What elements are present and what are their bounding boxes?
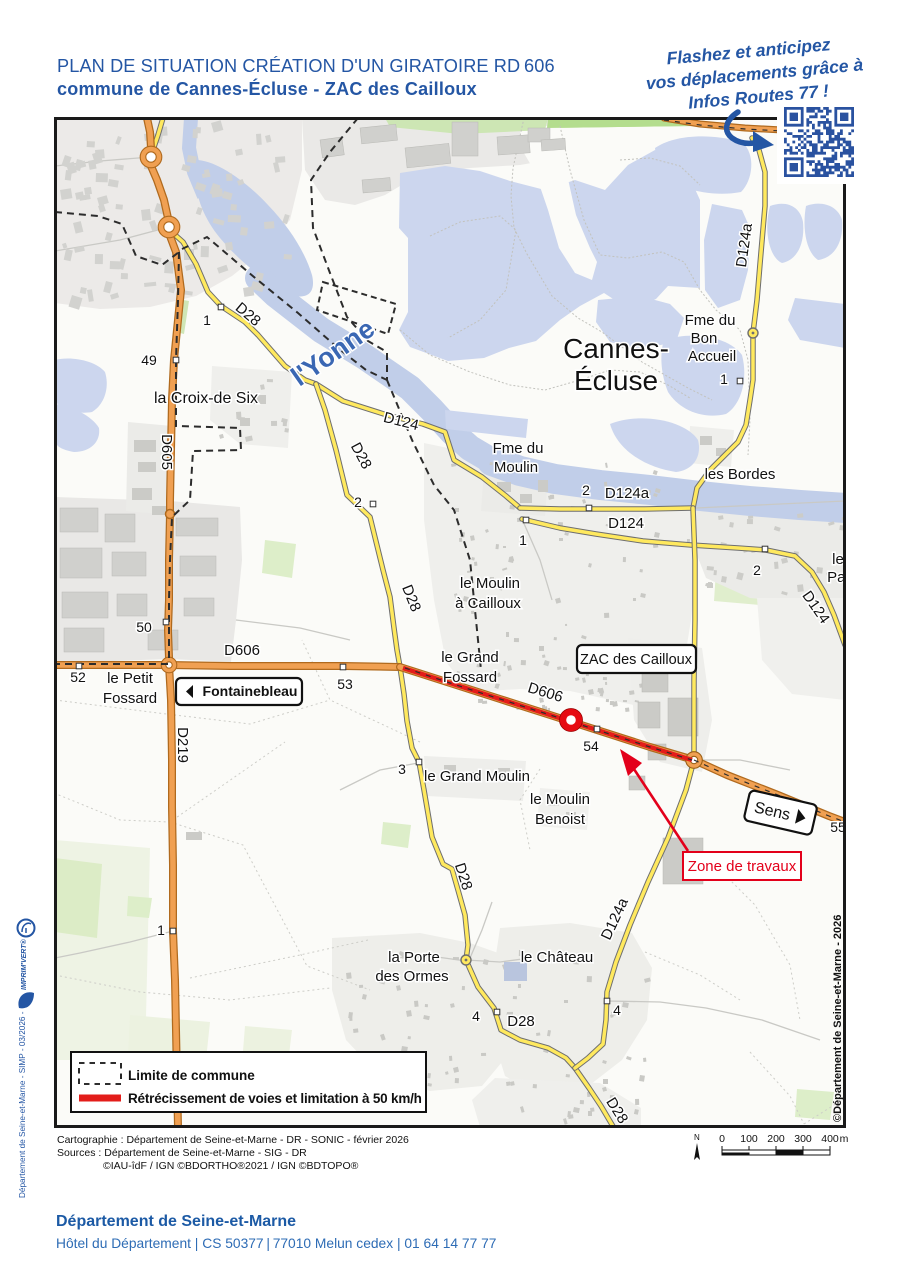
svg-text:1: 1 bbox=[203, 312, 211, 328]
svg-text:Bon: Bon bbox=[691, 330, 718, 347]
svg-text:300: 300 bbox=[794, 1133, 812, 1145]
svg-text:3: 3 bbox=[398, 761, 406, 777]
svg-text:1: 1 bbox=[519, 532, 527, 548]
svg-text:le Moulin: le Moulin bbox=[460, 575, 520, 592]
svg-text:200: 200 bbox=[767, 1133, 785, 1145]
svg-text:400: 400 bbox=[821, 1133, 839, 1145]
svg-text:49: 49 bbox=[141, 352, 157, 368]
svg-text:Hôtel du Département | CS 5037: Hôtel du Département | CS 50377 | 77010 … bbox=[56, 1236, 496, 1251]
svg-text:0: 0 bbox=[719, 1133, 725, 1145]
svg-text:Benoist: Benoist bbox=[535, 811, 586, 828]
svg-text:Fontainebleau: Fontainebleau bbox=[203, 683, 298, 699]
svg-text:le Grand: le Grand bbox=[441, 649, 499, 666]
svg-text:Cartographie : Département de: Cartographie : Département de Seine-et-M… bbox=[57, 1134, 409, 1146]
svg-text:PLAN DE SITUATION CRÉATION D'U: PLAN DE SITUATION CRÉATION D'UN GIRATOIR… bbox=[57, 56, 555, 76]
svg-text:Département de Seine-et-Marne: Département de Seine-et-Marne - SIMP - 0… bbox=[18, 1011, 27, 1198]
svg-text:des Ormes: des Ormes bbox=[375, 968, 448, 985]
svg-text:ZAC des Cailloux: ZAC des Cailloux bbox=[580, 652, 693, 668]
svg-text:50: 50 bbox=[136, 619, 152, 635]
svg-text:N: N bbox=[694, 1133, 700, 1142]
svg-text:la Croix-de Six: la Croix-de Six bbox=[154, 390, 258, 407]
svg-text:Accueil: Accueil bbox=[688, 348, 736, 365]
svg-text:Moulin: Moulin bbox=[494, 459, 538, 476]
svg-text:D219: D219 bbox=[174, 727, 191, 763]
svg-text:le Moulin: le Moulin bbox=[530, 791, 590, 808]
svg-text:4: 4 bbox=[613, 1002, 621, 1018]
svg-text:2: 2 bbox=[582, 482, 590, 498]
svg-text:Fossard: Fossard bbox=[443, 669, 497, 686]
svg-text:commune de Cannes-Écluse - ZAC: commune de Cannes-Écluse - ZAC des Caill… bbox=[57, 78, 477, 99]
svg-text:D124: D124 bbox=[608, 515, 644, 532]
svg-text:les Bordes: les Bordes bbox=[705, 466, 776, 483]
svg-text:2: 2 bbox=[753, 562, 761, 578]
svg-text:D28: D28 bbox=[507, 1013, 535, 1030]
svg-text:m: m bbox=[840, 1133, 849, 1145]
svg-text:Fossard: Fossard bbox=[103, 690, 157, 707]
svg-text:1: 1 bbox=[720, 371, 728, 387]
svg-text:Rétrécissement de voies et lim: Rétrécissement de voies et limitation à … bbox=[128, 1091, 422, 1106]
svg-text:D124a: D124a bbox=[605, 485, 650, 502]
svg-text:©Département de Seine-et-Marne: ©Département de Seine-et-Marne - 2026 bbox=[832, 915, 844, 1122]
svg-text:Sources : Département de Seine: Sources : Département de Seine-et-Marne … bbox=[57, 1147, 307, 1159]
svg-text:Cannes-: Cannes- bbox=[563, 333, 669, 364]
svg-text:53: 53 bbox=[337, 676, 353, 692]
svg-text:©IAU-îdF / IGN ©BDORTHO®2021 /: ©IAU-îdF / IGN ©BDORTHO®2021 / IGN ©BDTO… bbox=[103, 1160, 359, 1172]
svg-text:le: le bbox=[832, 551, 844, 568]
svg-text:Fme du: Fme du bbox=[685, 312, 736, 329]
svg-text:le Petit: le Petit bbox=[107, 670, 154, 687]
svg-text:Zone de travaux: Zone de travaux bbox=[688, 858, 797, 875]
svg-text:2: 2 bbox=[354, 494, 362, 510]
svg-text:4: 4 bbox=[472, 1008, 480, 1024]
svg-text:à Cailloux: à Cailloux bbox=[455, 595, 521, 612]
svg-text:100: 100 bbox=[740, 1133, 758, 1145]
svg-text:D605: D605 bbox=[158, 434, 175, 470]
svg-text:IMPRIM'VERT®: IMPRIM'VERT® bbox=[20, 939, 28, 990]
svg-text:Fme du: Fme du bbox=[493, 440, 544, 457]
svg-text:1: 1 bbox=[157, 922, 165, 938]
svg-text:la Porte: la Porte bbox=[388, 949, 440, 966]
svg-text:Département de Seine-et-Marne: Département de Seine-et-Marne bbox=[56, 1213, 296, 1230]
svg-text:54: 54 bbox=[583, 738, 599, 754]
svg-text:le Château: le Château bbox=[521, 949, 594, 966]
svg-text:D606: D606 bbox=[224, 642, 260, 659]
svg-text:le Grand Moulin: le Grand Moulin bbox=[424, 768, 530, 785]
svg-text:52: 52 bbox=[70, 669, 86, 685]
svg-text:Écluse: Écluse bbox=[574, 365, 658, 396]
svg-text:Pav: Pav bbox=[827, 569, 853, 586]
svg-text:Limite de commune: Limite de commune bbox=[128, 1068, 255, 1083]
